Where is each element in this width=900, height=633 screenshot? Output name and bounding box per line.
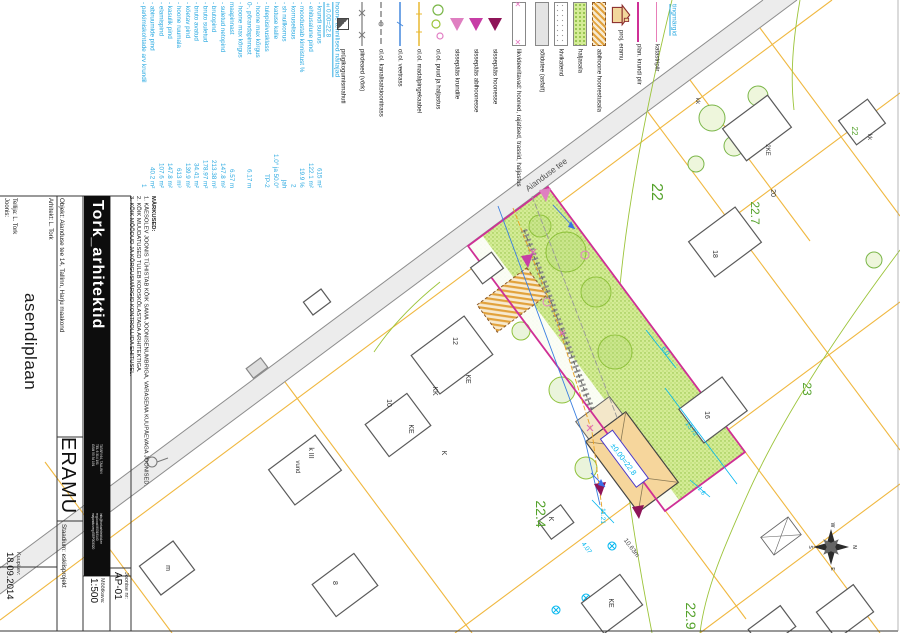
house-kk-label: kk <box>866 134 872 141</box>
tech-benchmark: ±0.00=22.8 <box>323 2 332 188</box>
scale-value: 1:500 <box>88 578 99 603</box>
house-k3-label: k III <box>307 447 314 458</box>
registry-line: info@torkarhitektid.ee <box>99 513 103 576</box>
note-1: 1. KÄESOLEV JOONIS TÜHISTAB KÕIK SAMA JO… <box>141 196 148 633</box>
house-20-label: 20 <box>769 189 776 197</box>
waste-container-icon <box>336 2 350 46</box>
house-8-label: 8 <box>331 581 338 585</box>
corner-legend-header: tingmärgid <box>671 4 678 94</box>
drawing-sheet: ±0.00=22.8 N S E W Aianduse tee 22 22.7 … <box>0 0 900 633</box>
corner-item-proj-eramu: proj. eramu <box>612 2 628 122</box>
tech-row: moodustab kinnistust %19.9 % <box>296 2 305 188</box>
project-name: ERAMU <box>56 437 79 514</box>
house-ke-label: KE <box>407 424 414 434</box>
legend-item-veetrass: ol.ol. veetrass <box>391 2 409 191</box>
planned-roof-outline <box>761 517 801 555</box>
compass-rose: N S E W <box>807 523 857 572</box>
architect-logo-bar: Tork_arhitektid TATARI 64, TALLINN TEL 6… <box>84 196 110 576</box>
drawing-number-block: Joonise nr: AP-01 <box>112 572 129 600</box>
tech-row: abiruumide pind40.2 m² <box>147 2 156 188</box>
dim-4-07: 4.07 <box>580 541 593 556</box>
house-18-label: 18 <box>711 250 718 258</box>
house-k-label: K <box>440 451 447 456</box>
joonis-label: Joonis: <box>3 198 9 217</box>
legend-item-sissepaas-krundile: sissepääs krundile <box>448 2 466 191</box>
legend-label: sissepääs abihoonesse <box>473 49 480 191</box>
house-16-label: 16 <box>703 411 710 419</box>
legend-label: sõidutee (asfalt) <box>539 49 546 191</box>
notes-block: MÄRKUSED: 1. KÄESOLEV JOONIS TÜHISTAB KÕ… <box>110 196 156 633</box>
tech-row: parkimiskohtade arv krundil1 <box>138 2 147 188</box>
trees-icon <box>431 2 445 46</box>
legend-item-kanalisatsioon: ol.ol. kanalisatsioonitrass <box>372 2 390 191</box>
house-kk-label: KK <box>431 386 438 396</box>
legend-label: likvideeritavad: hooned, rajatised, tras… <box>515 49 522 191</box>
scale-label: Mõõtkava: <box>99 578 105 603</box>
house-12-label: 12 <box>451 337 458 345</box>
fence-line-icon <box>355 2 369 46</box>
tech-row: 0-, põrandapinnast6.17 m <box>244 2 253 188</box>
tellija-label: Tellija: L. Tork <box>11 198 17 234</box>
tech-row: brutopind213.38 m² <box>208 2 217 188</box>
water-line-icon <box>393 2 407 46</box>
house-ke-label: KE <box>607 598 614 608</box>
scale-block: Mõõtkava: 1:500 <box>88 578 105 603</box>
tech-row: suletud netopind147.8 m² <box>217 2 226 188</box>
tech-row: bruto avatud34.41 m² <box>191 2 200 188</box>
compass-w: W <box>829 523 835 528</box>
tech-row: bruto suletud178.97 m² <box>200 2 209 188</box>
abihoone-swatch-icon <box>592 2 606 46</box>
tech-row: hoone ruumala613 m³ <box>173 2 182 188</box>
plot-23-label: 23 <box>800 382 814 396</box>
arhitekt-label: Arhitekt: L. Tork <box>47 198 53 240</box>
legend-item-sissepaas-hoonesse: sissepääs hoonesse <box>486 2 504 191</box>
corner-label: proj. eramu <box>617 30 624 108</box>
plot-22-label: 22 <box>648 183 665 201</box>
legend-item-sissepaas-abihoonesse: sissepääs abihoonesse <box>467 2 485 191</box>
tech-row: hoone max kõrgus <box>235 2 244 188</box>
legend-label: kivikatend <box>558 49 565 191</box>
tech-row: katuse kalle1.0° ja 50.0° <box>270 2 279 188</box>
legend-label: ol.ol. puud ja haljastus <box>435 49 442 191</box>
tech-row: sh nullkorrusjah <box>279 2 288 188</box>
tech-row: tulepüsivusklassTP-2 <box>261 2 270 188</box>
likvideeritav-swatch-icon <box>512 2 526 46</box>
legend-item-prygi: prügikogumismahuti <box>334 2 352 191</box>
corner-legend-header-item: tingmärgid <box>666 2 682 122</box>
legend-item-piirdeaed: piirdeaed (võrk) <box>353 2 371 191</box>
address-line: GSM 50 34 191 <box>91 444 95 507</box>
legend-item-likvideeritavad: likvideeritavad: hooned, rajatised, tras… <box>505 2 532 191</box>
legend-label: piirdeaed (võrk) <box>359 49 366 191</box>
dim-11-21: 11.21 <box>599 508 606 524</box>
legend-label: ol.ol. madalpingekaabel <box>416 49 423 191</box>
drawing-title: asendiplaan <box>20 293 40 390</box>
planned-plot-line-icon <box>637 2 639 42</box>
address-line: TEL 6 314 191 <box>95 444 99 507</box>
power-cable-line-icon <box>412 2 426 46</box>
tech-row: korruselisus2 <box>288 2 297 188</box>
tech-row: hoone max kõrgus <box>252 2 261 188</box>
house-k-label: K <box>547 517 554 522</box>
registry-line: reg.kood 80319140 <box>95 513 99 576</box>
house-ke-label: KE <box>464 374 471 384</box>
registry-line: majandusreg EEP003320 <box>91 513 95 576</box>
soidutee-swatch-icon <box>535 2 549 46</box>
drawing-number-value: AP-01 <box>112 572 123 600</box>
house-m-label: m <box>164 565 171 571</box>
legend-item-madalpingekaabel: ol.ol. madalpingekaabel <box>410 2 428 191</box>
entrance-outbuilding-triangle-icon <box>469 2 483 46</box>
legend-item-haljasala: haljasala <box>571 2 589 191</box>
entrance-house-triangle-icon <box>488 2 502 46</box>
tech-row: elamispind107.6 m² <box>156 2 165 188</box>
technical-data-list: hoone tehnilised näitajad ±0.00=22.8 kru… <box>138 2 340 188</box>
corner-item-krundi-piir: plan. krundi piir <box>630 2 646 122</box>
legend-label: sissepääs hoonesse <box>492 49 499 191</box>
legend-label: abihoone hoonestusala <box>596 49 603 191</box>
note-3: 3. KÕIK MÕÕDUD JA KÕRGUSMÄRGID KONTROLLI… <box>126 196 133 633</box>
sewer-line-icon <box>374 2 388 46</box>
legend-label: sissepääs krundile <box>454 49 461 191</box>
corner-label: katastripiir <box>653 44 660 122</box>
architect-address: TATARI 64, TALLINN TEL 6 314 191 GSM 50 … <box>91 444 103 507</box>
plot-22-small-label: 22 <box>850 127 859 136</box>
cadastral-line-icon <box>656 2 657 42</box>
legend-item-abihoone: abihoone hoonestusala <box>590 2 608 191</box>
house-icon <box>609 2 631 28</box>
house-2ke-label: 2KE <box>764 144 770 155</box>
notes-header: MÄRKUSED: <box>149 196 156 633</box>
corner-legend: tingmärgid katastripiir plan. krundi pii… <box>612 2 682 122</box>
legend-label: ol.ol. veetrass <box>397 49 404 191</box>
note-2: 2. KÕIK MUUDATUSED TULEB KOOSKÕLASTADA A… <box>134 196 141 633</box>
haljasala-swatch-icon <box>573 2 587 46</box>
date-label: Kuupäev: <box>15 552 21 600</box>
plot-22-9-label: 22.9 <box>683 602 699 629</box>
tech-row: maapinnast6.57 m <box>226 2 235 188</box>
tech-row: köetav pind139.9 m² <box>182 2 191 188</box>
tech-row: ehitusalune pind122.1 m² <box>305 2 314 188</box>
legend: abihoone hoonestusala haljasala kivikate… <box>334 2 608 191</box>
objekt-label: Objekt: Aianduse tee 14, Tallinn, Harju … <box>58 198 65 332</box>
drawing-number-label: Joonise nr: <box>123 572 129 600</box>
kivikatend-swatch-icon <box>554 2 568 46</box>
date-value: 18.09.2014 <box>4 552 15 600</box>
address-line: TATARI 64, TALLINN <box>99 444 103 507</box>
house-kk-label: kk <box>694 98 700 105</box>
legend-label: haljasala <box>577 49 584 191</box>
entrance-plot-triangle-icon <box>450 2 464 46</box>
dim-1-6: 1.6 <box>696 485 707 497</box>
architect-logo: Tork_arhitektid <box>88 200 106 438</box>
legend-item-kivikatend: kivikatend <box>552 2 570 191</box>
house-vund-label: vund <box>294 460 300 473</box>
tech-row: kasulik pind147.8 m² <box>164 2 173 188</box>
legend-label: ol.ol. kanalisatsioonitrass <box>378 49 385 191</box>
plot-22-7-label: 22.7 <box>748 201 762 225</box>
date-block: Kuupäev: 18.09.2014 <box>4 552 21 600</box>
plot-22-4-label: 22.4 <box>533 500 549 527</box>
side-length-10-63: 10.63m <box>622 537 641 559</box>
staadium-label: Staadium: eskiisprojekt <box>60 524 67 588</box>
house-10-label: 10 <box>385 399 392 407</box>
compass-s: S <box>807 545 813 549</box>
corner-item-katastripiir: katastripiir <box>648 2 664 122</box>
legend-item-soidutee: sõidutee (asfalt) <box>533 2 551 191</box>
corner-label: plan. krundi piir <box>635 44 642 122</box>
compass-n: N <box>851 545 857 549</box>
tech-row: krundi suurus615 m² <box>314 2 323 188</box>
legend-label: prügikogumismahuti <box>340 49 347 191</box>
legend-item-puud: ol.ol. puud ja haljastus <box>429 2 447 191</box>
architect-registry: info@torkarhitektid.ee reg.kood 80319140… <box>91 513 103 576</box>
